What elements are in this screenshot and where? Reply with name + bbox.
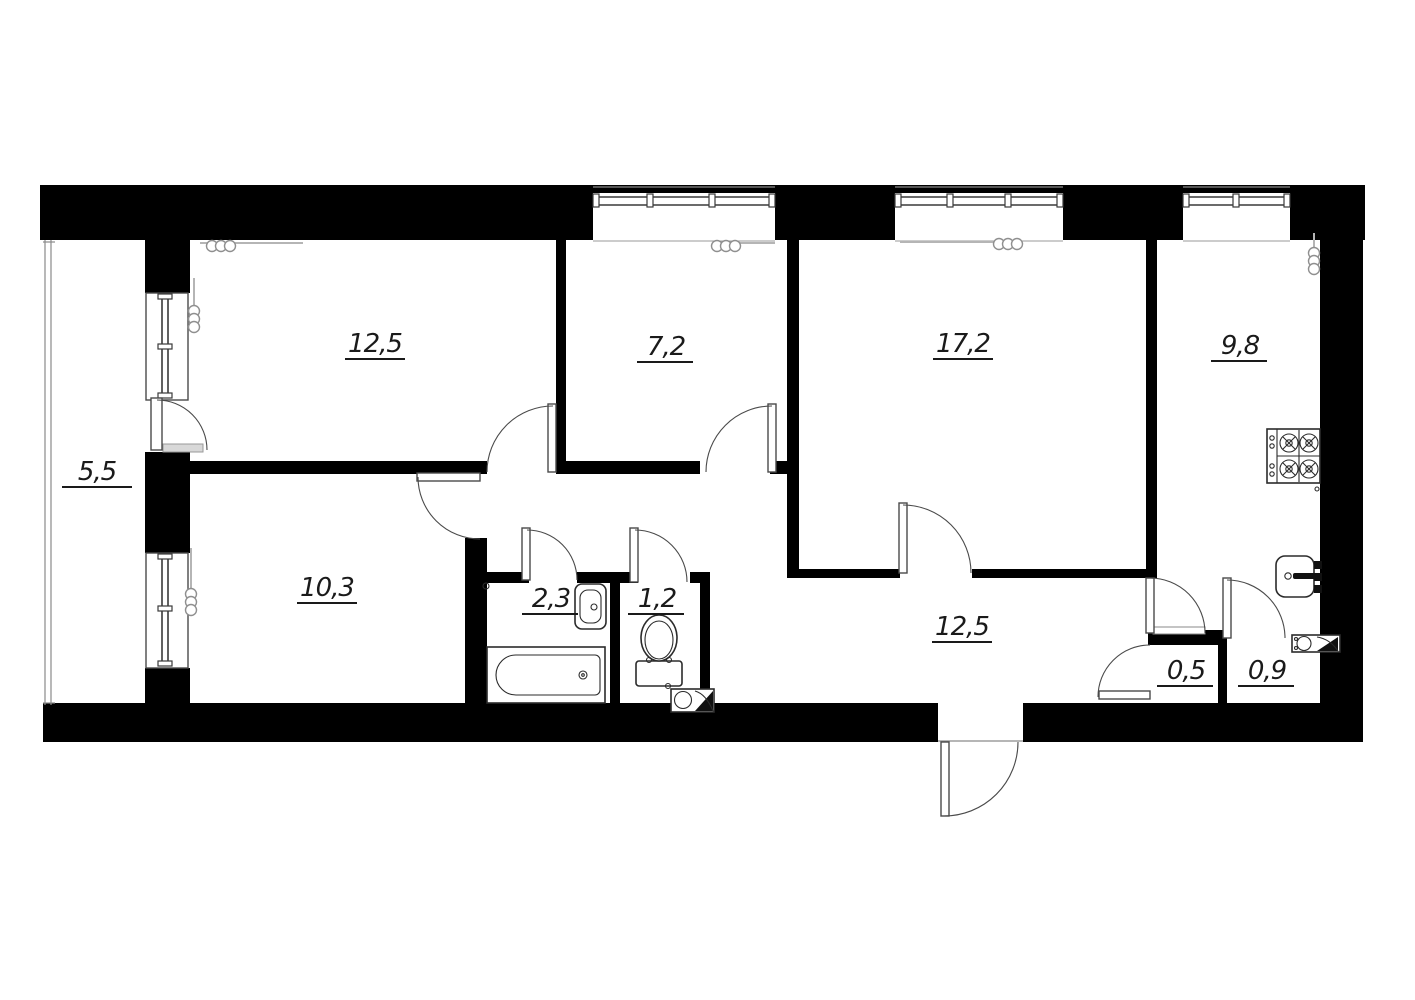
label-storage-small: 0,5	[1157, 656, 1213, 686]
window-room-7-2	[593, 187, 775, 241]
floor-plan-page: 5,5 12,5 7,2 17,2 9,8 10,3 2,3 1,2	[0, 0, 1415, 1000]
entrance-door	[938, 741, 1023, 816]
radiator-room-small	[712, 241, 776, 252]
toilet-door	[630, 528, 687, 582]
label-kitchen: 9,8	[1211, 331, 1267, 361]
balcony-area-label: 5,5	[78, 457, 117, 487]
living-room-area-label: 17,2	[936, 329, 990, 359]
bedroom-2-area-label: 10,3	[300, 573, 354, 603]
storage-small-door	[1098, 645, 1150, 699]
balcony-glazing	[43, 240, 55, 705]
bathtub-icon	[487, 647, 605, 703]
storage-area-label: 0,9	[1248, 656, 1286, 686]
vent-duct-kitchen-icon	[1292, 635, 1340, 652]
radiator-bedroom-side	[189, 278, 200, 333]
label-toilet: 1,2	[628, 584, 684, 614]
bedroom-2-door	[417, 473, 480, 539]
window-room-17-2	[895, 187, 1063, 241]
living-room-door	[899, 503, 971, 573]
toilet-area-label: 1,2	[638, 584, 676, 614]
radiator-bedroom-top	[200, 241, 303, 252]
lobby-door	[1146, 578, 1205, 634]
label-storage: 0,9	[1238, 656, 1294, 686]
room-small-door	[706, 404, 776, 472]
kitchen-sink-icon	[1276, 556, 1322, 597]
label-balcony: 5,5	[62, 457, 132, 487]
kitchen-area-label: 9,8	[1221, 331, 1260, 361]
label-bathroom: 2,3	[522, 584, 578, 614]
radiator-living-room	[900, 239, 1023, 250]
toilet-icon	[636, 615, 682, 686]
window-kitchen	[1183, 187, 1290, 241]
bathroom-area-label: 2,3	[532, 584, 570, 614]
label-hallway: 12,5	[932, 612, 992, 642]
window-balcony-bedroom-2	[146, 553, 188, 668]
bedroom-door	[487, 404, 556, 472]
wash-basin-icon	[575, 584, 606, 629]
bedroom-area-label: 12,5	[348, 329, 402, 359]
gas-stove-icon	[1267, 429, 1320, 491]
hallway-area-label: 12,5	[935, 612, 989, 642]
room-small-area-label: 7,2	[647, 332, 685, 362]
window-balcony-bedroom	[146, 293, 188, 400]
room-labels: 5,5 12,5 7,2 17,2 9,8 10,3 2,3 1,2	[62, 329, 1294, 686]
floor-plan-canvas: 5,5 12,5 7,2 17,2 9,8 10,3 2,3 1,2	[0, 0, 1415, 1000]
label-bedroom-2: 10,3	[297, 573, 357, 603]
storage-small-area-label: 0,5	[1167, 656, 1206, 686]
label-room-small: 7,2	[637, 332, 693, 362]
facade-windows	[593, 187, 1290, 241]
label-living-room: 17,2	[933, 329, 993, 359]
balcony-door	[151, 398, 207, 452]
label-bedroom: 12,5	[345, 329, 405, 359]
